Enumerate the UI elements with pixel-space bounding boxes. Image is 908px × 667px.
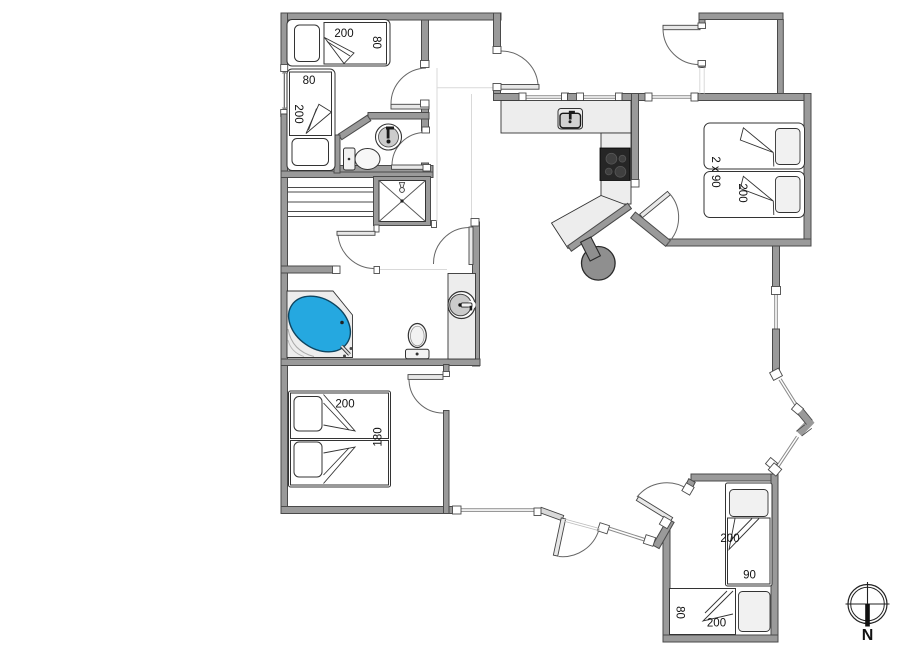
svg-text:200: 200 — [334, 28, 353, 40]
svg-text:2 x 90: 2 x 90 — [709, 156, 721, 187]
svg-text:90: 90 — [743, 570, 756, 582]
svg-text:200: 200 — [736, 183, 748, 202]
svg-text:N: N — [862, 627, 874, 644]
svg-text:200: 200 — [720, 533, 739, 545]
svg-text:80: 80 — [370, 36, 382, 49]
svg-text:180: 180 — [373, 427, 385, 446]
svg-text:200: 200 — [707, 618, 726, 630]
svg-text:200: 200 — [292, 104, 304, 123]
svg-text:200: 200 — [335, 399, 354, 411]
svg-text:80: 80 — [674, 606, 686, 619]
svg-text:80: 80 — [303, 75, 316, 87]
